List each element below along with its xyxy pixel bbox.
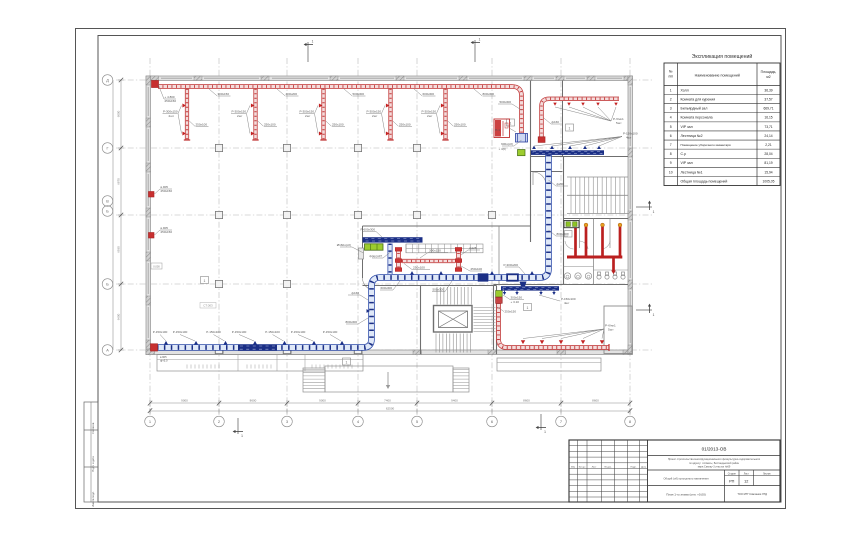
svg-text:24,14: 24,14 bbox=[764, 134, 772, 138]
svg-text:6: 6 bbox=[670, 134, 672, 138]
svg-text:10: 10 bbox=[669, 170, 673, 174]
svg-text:Помещение уборочного инвентаря: Помещение уборочного инвентаря bbox=[681, 143, 731, 147]
svg-text:800х300: 800х300 bbox=[345, 320, 357, 324]
svg-text:8600: 8600 bbox=[592, 398, 599, 402]
svg-text:Р-150х100: Р-150х100 bbox=[291, 330, 306, 334]
svg-text:Общая площадь помещений: Общая площадь помещений bbox=[681, 179, 728, 183]
svg-text:Лестница №1: Лестница №1 bbox=[681, 170, 703, 174]
svg-text:37,57: 37,57 bbox=[764, 98, 772, 102]
svg-text:4: 4 bbox=[670, 116, 672, 120]
svg-text:800х300: 800х300 bbox=[557, 232, 569, 236]
svg-text:600х300: 600х300 bbox=[380, 286, 392, 290]
svg-text:1: 1 bbox=[204, 279, 206, 283]
svg-text:Подп.: Подп. bbox=[631, 466, 637, 468]
svg-text:Р-150х100: Р-150х100 bbox=[232, 330, 247, 334]
svg-text:800х300: 800х300 bbox=[483, 92, 495, 96]
svg-text:1: 1 bbox=[653, 210, 655, 214]
svg-text:9000: 9000 bbox=[181, 398, 188, 402]
svg-text:1: 1 bbox=[479, 38, 481, 42]
svg-text:250х150: 250х150 bbox=[165, 99, 177, 103]
svg-text:300х150: 300х150 bbox=[429, 249, 441, 253]
svg-text:669,71: 669,71 bbox=[763, 107, 773, 111]
svg-text:Д: Д bbox=[106, 79, 109, 83]
svg-text:3: 3 bbox=[670, 107, 672, 111]
svg-text:VIP зал: VIP зал bbox=[681, 161, 693, 165]
svg-text:№: № bbox=[669, 70, 673, 74]
svg-text:П-1: П-1 bbox=[495, 128, 500, 132]
svg-text:36,39: 36,39 bbox=[764, 88, 772, 92]
svg-text:Лист: Лист bbox=[592, 466, 597, 468]
svg-text:Площадь,: Площадь, bbox=[761, 70, 777, 74]
svg-text:4шт: 4шт bbox=[564, 301, 570, 305]
svg-text:8600: 8600 bbox=[250, 398, 257, 402]
svg-text:Р-300х200: Р-300х200 bbox=[503, 263, 518, 267]
svg-text:VIP зал: VIP зал bbox=[681, 125, 693, 129]
svg-text:Р-150х100: Р-150х100 bbox=[153, 330, 168, 334]
svg-text:2шт: 2шт bbox=[305, 114, 311, 118]
svg-text:С.у.: С.у. bbox=[681, 152, 687, 156]
svg-text:1: 1 bbox=[544, 430, 546, 434]
svg-text:Экспликация помещений: Экспликация помещений bbox=[692, 53, 753, 60]
svg-text:Кол.уч: Кол.уч bbox=[579, 466, 586, 468]
svg-text:Р-150х100: Р-150х100 bbox=[265, 330, 280, 334]
svg-text:7: 7 bbox=[670, 143, 672, 147]
svg-text:2шт: 2шт bbox=[372, 114, 378, 118]
svg-text:Холл: Холл bbox=[681, 88, 689, 92]
svg-text:2шт: 2шт bbox=[427, 114, 433, 118]
svg-text:мкрн.Самгау-3 участок №69: мкрн.Самгау-3 участок №69 bbox=[698, 466, 731, 469]
svg-text:Бильярдный зал: Бильярдный зал bbox=[681, 107, 708, 111]
svg-text:п/п: п/п bbox=[668, 75, 673, 79]
svg-text:5шт: 5шт bbox=[616, 121, 622, 125]
svg-text:7400: 7400 bbox=[384, 398, 391, 402]
svg-text:Лестница №2: Лестница №2 bbox=[681, 134, 703, 138]
svg-text:План 1-го этажа (отм. +0,00): План 1-го этажа (отм. +0,00) bbox=[666, 493, 706, 497]
svg-text:1: 1 bbox=[241, 434, 243, 438]
svg-text:В: В bbox=[106, 200, 109, 204]
svg-text:Р-150х100: Р-150х100 bbox=[206, 330, 221, 334]
svg-text:1: 1 bbox=[569, 126, 571, 130]
svg-text:250х100: 250х100 bbox=[264, 122, 276, 126]
svg-text:12: 12 bbox=[744, 480, 748, 484]
svg-text:1: 1 bbox=[312, 40, 314, 44]
svg-text:1: 1 bbox=[670, 88, 672, 92]
svg-text:1: 1 bbox=[527, 306, 529, 310]
svg-text:Комната для курения: Комната для курения bbox=[681, 98, 716, 102]
svg-text:Проект строительства многофунк: Проект строительства многофункциональног… bbox=[668, 458, 761, 461]
svg-text:250х100: 250х100 bbox=[196, 122, 208, 126]
svg-text:8: 8 bbox=[670, 152, 672, 156]
svg-text:5: 5 bbox=[670, 125, 672, 129]
svg-text:250х100: 250х100 bbox=[471, 267, 483, 271]
svg-text:Ø160х(об): Ø160х(об) bbox=[337, 243, 351, 247]
svg-text:ф(кр.)х07: ф(кр.)х07 bbox=[369, 254, 382, 258]
svg-text:СТ.003: СТ.003 bbox=[203, 304, 213, 308]
svg-text:Листов: Листов bbox=[763, 473, 771, 475]
svg-text:Р-150х100: Р-150х100 bbox=[173, 330, 188, 334]
svg-text:1005,05: 1005,05 bbox=[763, 179, 775, 183]
svg-text:Стадия: Стадия bbox=[728, 473, 737, 475]
svg-text:РП: РП bbox=[729, 480, 735, 484]
svg-text:Г: Г bbox=[106, 147, 108, 151]
svg-text:Подп. и дата: Подп. и дата bbox=[91, 456, 95, 472]
svg-text:28,04: 28,04 bbox=[764, 152, 772, 156]
svg-text:81,19: 81,19 bbox=[764, 161, 772, 165]
svg-text:Общий (об) культурного назначе: Общий (об) культурного назначения bbox=[663, 477, 709, 481]
svg-text:Р-150х100: Р-150х100 bbox=[323, 330, 338, 334]
svg-text:1: 1 bbox=[653, 313, 655, 317]
svg-text:9: 9 bbox=[670, 161, 672, 165]
svg-text:2шт: 2шт bbox=[237, 114, 243, 118]
svg-text:1: 1 bbox=[346, 360, 348, 364]
svg-text:6930: 6930 bbox=[117, 246, 121, 253]
svg-text:250х150: 250х150 bbox=[161, 189, 173, 193]
svg-text:600х(об): 600х(об) bbox=[501, 142, 513, 146]
svg-text:ф125: ф125 bbox=[469, 246, 477, 250]
svg-text:Согласов.: Согласов. bbox=[91, 422, 95, 434]
svg-text:Р-600х300: Р-600х300 bbox=[360, 228, 375, 232]
svg-text:01/2013-ОВ: 01/2013-ОВ bbox=[702, 447, 727, 452]
svg-text:2: 2 bbox=[670, 98, 672, 102]
svg-text:500х300: 500х300 bbox=[499, 100, 511, 104]
svg-text:250х150: 250х150 bbox=[161, 230, 173, 234]
svg-text:Инв.№ подл.: Инв.№ подл. bbox=[91, 491, 95, 507]
svg-text:+ 4(0): + 4(0) bbox=[499, 147, 506, 151]
svg-text:в.905: в.905 bbox=[160, 355, 167, 359]
svg-text:400х200: 400х200 bbox=[286, 92, 298, 96]
svg-text:250х100: 250х100 bbox=[332, 122, 344, 126]
svg-text:500х300: 500х300 bbox=[353, 92, 365, 96]
svg-text:300х150: 300х150 bbox=[218, 92, 230, 96]
svg-text:250х150: 250х150 bbox=[505, 310, 517, 314]
svg-text:250х100: 250х100 bbox=[399, 122, 411, 126]
svg-text:9000: 9000 bbox=[319, 398, 326, 402]
svg-text:250х100: 250х100 bbox=[454, 122, 466, 126]
svg-text:ТОО МТГ Компания ЛТД: ТОО МТГ Компания ЛТД bbox=[737, 492, 767, 496]
svg-text:4шт: 4шт bbox=[626, 136, 632, 140]
svg-text:73,71: 73,71 bbox=[764, 125, 772, 129]
svg-text:6000: 6000 bbox=[117, 110, 121, 117]
svg-text:ф200: ф200 bbox=[557, 182, 565, 186]
svg-text:Дата: Дата bbox=[641, 466, 647, 468]
svg-text:15,94: 15,94 bbox=[764, 170, 772, 174]
svg-text:500х300: 500х300 bbox=[432, 288, 444, 292]
svg-text:ф160: ф160 bbox=[552, 120, 560, 124]
svg-text:по адресу: г.Алматы, Бостандык: по адресу: г.Алматы, Бостандыкский район bbox=[689, 462, 740, 465]
svg-text:+ 3.10: + 3.10 bbox=[511, 300, 520, 304]
svg-text:А: А bbox=[106, 349, 109, 353]
svg-text:16,15: 16,15 bbox=[764, 116, 772, 120]
svg-text:6600: 6600 bbox=[117, 313, 121, 320]
svg-text:ф160: ф160 bbox=[352, 291, 360, 295]
svg-text:2,21: 2,21 bbox=[765, 143, 772, 147]
svg-text:ф+5,0: ф+5,0 bbox=[160, 359, 168, 363]
svg-text:250х100: 250х100 bbox=[413, 266, 425, 270]
svg-text:2шт: 2шт bbox=[169, 114, 175, 118]
svg-text:6870: 6870 bbox=[117, 178, 121, 185]
svg-text:62500: 62500 bbox=[386, 407, 395, 411]
svg-text:Наименование помещений: Наименование помещений bbox=[695, 74, 740, 78]
svg-text:8600: 8600 bbox=[523, 398, 530, 402]
svg-text:9400: 9400 bbox=[451, 398, 458, 402]
svg-text:600х300: 600х300 bbox=[423, 92, 435, 96]
svg-text:5шт: 5шт bbox=[608, 328, 614, 332]
svg-text:0.000: 0.000 bbox=[153, 265, 160, 269]
svg-text:Изм: Изм bbox=[571, 466, 576, 468]
svg-text:Комната персонала: Комната персонала bbox=[681, 116, 713, 120]
svg-text:м2: м2 bbox=[766, 75, 770, 79]
svg-text:№ док.: № док. bbox=[604, 465, 611, 468]
